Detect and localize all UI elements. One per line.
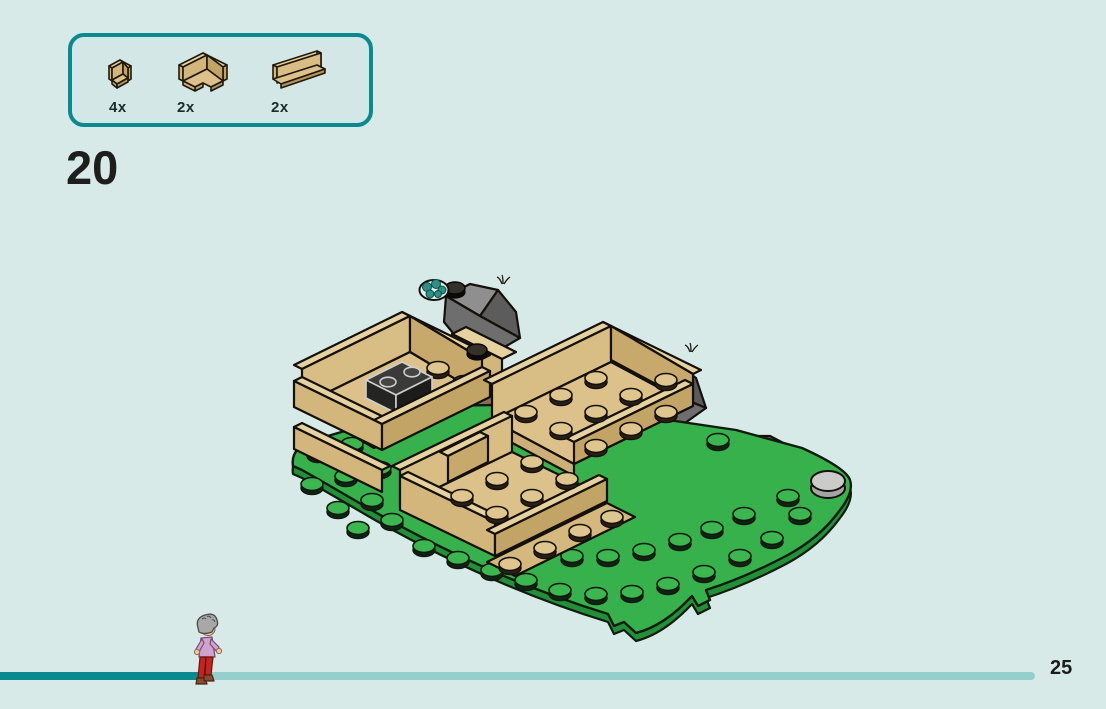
instruction-page: 4x 2x: [0, 0, 1106, 709]
grass-tuft-icon: [685, 343, 698, 352]
round-gray-tile: [811, 471, 845, 498]
model-illustration: [0, 0, 1106, 709]
progress-minifigure: [186, 612, 230, 692]
grass-tuft-icon: [497, 275, 510, 284]
dark-stud: [467, 344, 487, 360]
flower-tile: [420, 280, 466, 301]
page-number: 25: [1050, 657, 1072, 680]
green-stud: [707, 434, 729, 451]
progress-bar-completed: [0, 672, 199, 680]
progress-bar-remaining: [199, 672, 1035, 680]
